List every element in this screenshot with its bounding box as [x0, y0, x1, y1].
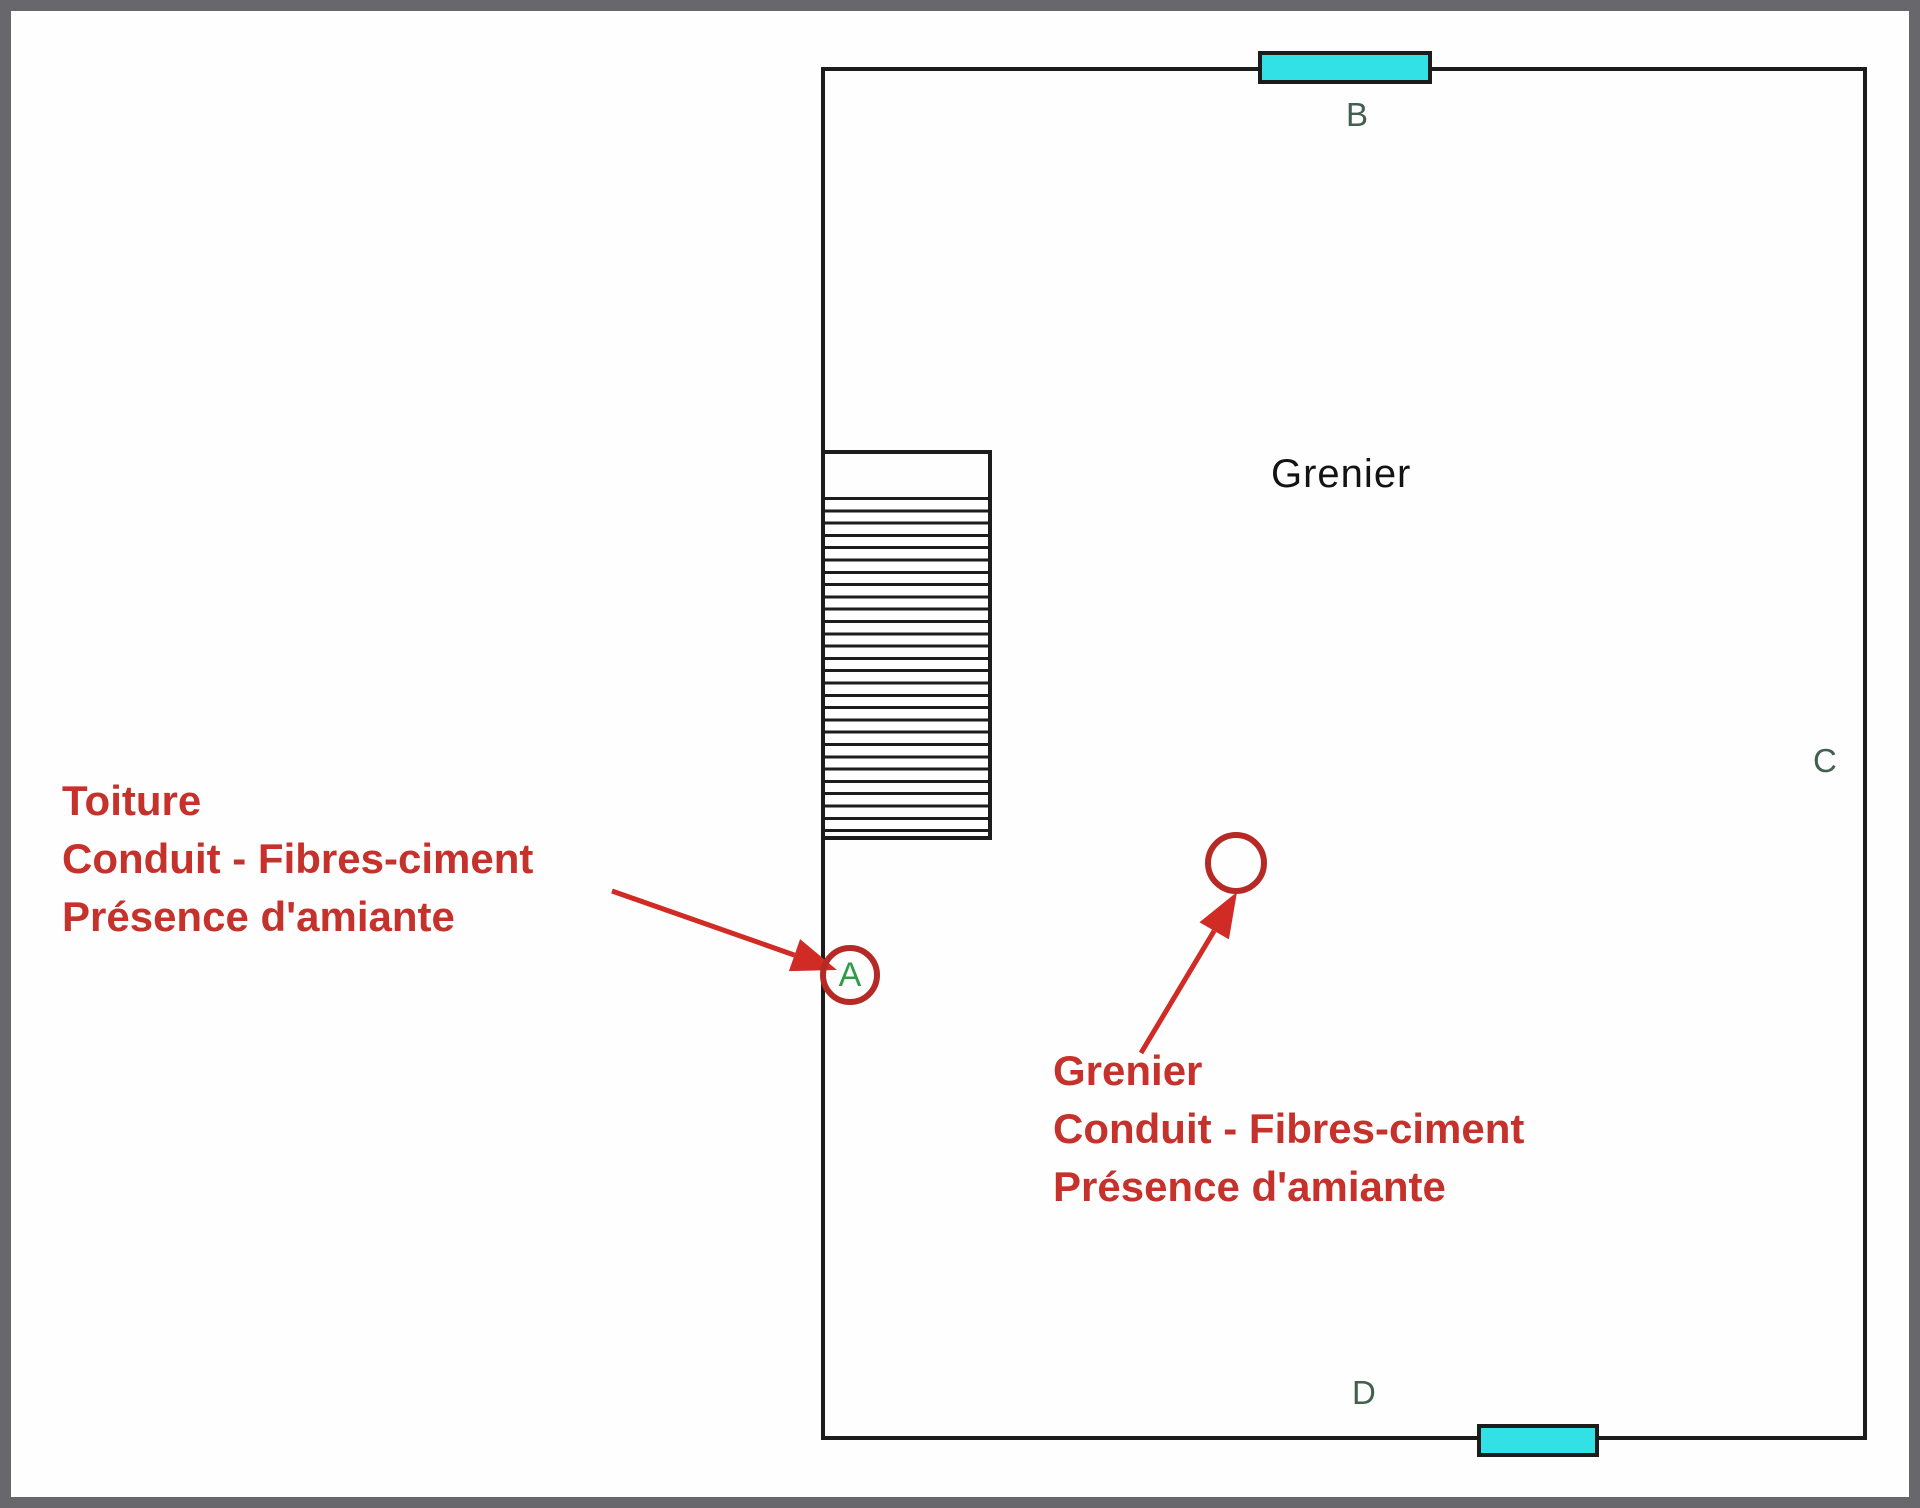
- staircase: [821, 450, 992, 840]
- annotation-toiture: Toiture Conduit - Fibres-ciment Présence…: [62, 772, 533, 946]
- asbestos-spot-circle-a: A: [820, 945, 880, 1005]
- annotation-grenier-line2: Conduit - Fibres-ciment: [1053, 1100, 1524, 1158]
- marker-letter-b: B: [1346, 96, 1368, 134]
- window-marker-d: [1477, 1424, 1599, 1457]
- annotation-toiture-line1: Toiture: [62, 772, 533, 830]
- asbestos-spot-circle-grenier: [1205, 832, 1267, 894]
- staircase-treads: [825, 497, 988, 836]
- annotation-toiture-line2: Conduit - Fibres-ciment: [62, 830, 533, 888]
- marker-letter-a: A: [839, 958, 862, 992]
- annotation-grenier-line1: Grenier: [1053, 1042, 1524, 1100]
- annotation-toiture-line3: Présence d'amiante: [62, 888, 533, 946]
- floor-plan-canvas: Grenier B C D A Toiture Conduit - Fibres…: [11, 11, 1909, 1497]
- window-marker-b: [1258, 51, 1432, 84]
- floor-plan-page: Grenier B C D A Toiture Conduit - Fibres…: [0, 0, 1920, 1508]
- annotation-grenier: Grenier Conduit - Fibres-ciment Présence…: [1053, 1042, 1524, 1216]
- marker-letter-c: C: [1813, 742, 1837, 780]
- marker-letter-d: D: [1352, 1374, 1376, 1412]
- annotation-grenier-line3: Présence d'amiante: [1053, 1158, 1524, 1216]
- arrow-toiture-line: [612, 891, 795, 955]
- room-label: Grenier: [1271, 452, 1411, 497]
